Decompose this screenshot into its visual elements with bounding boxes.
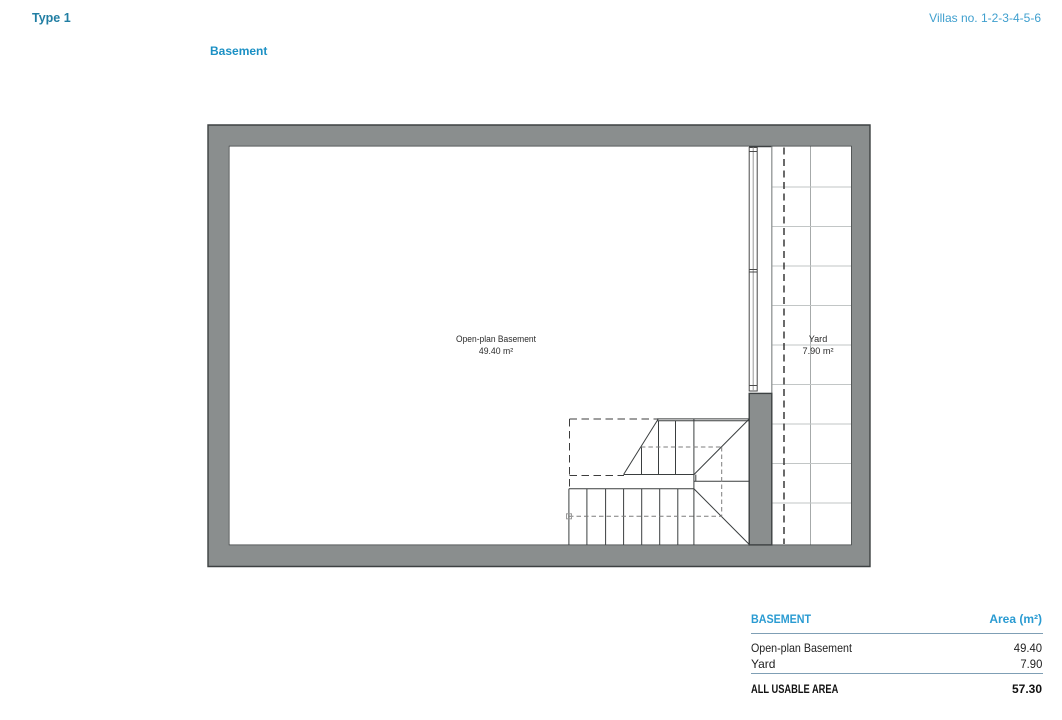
svg-text:49.40 m²: 49.40 m²	[479, 346, 513, 356]
svg-text:7.90 m²: 7.90 m²	[803, 346, 834, 356]
svg-text:Open-plan Basement: Open-plan Basement	[456, 334, 536, 344]
svg-text:Yard: Yard	[809, 334, 828, 344]
